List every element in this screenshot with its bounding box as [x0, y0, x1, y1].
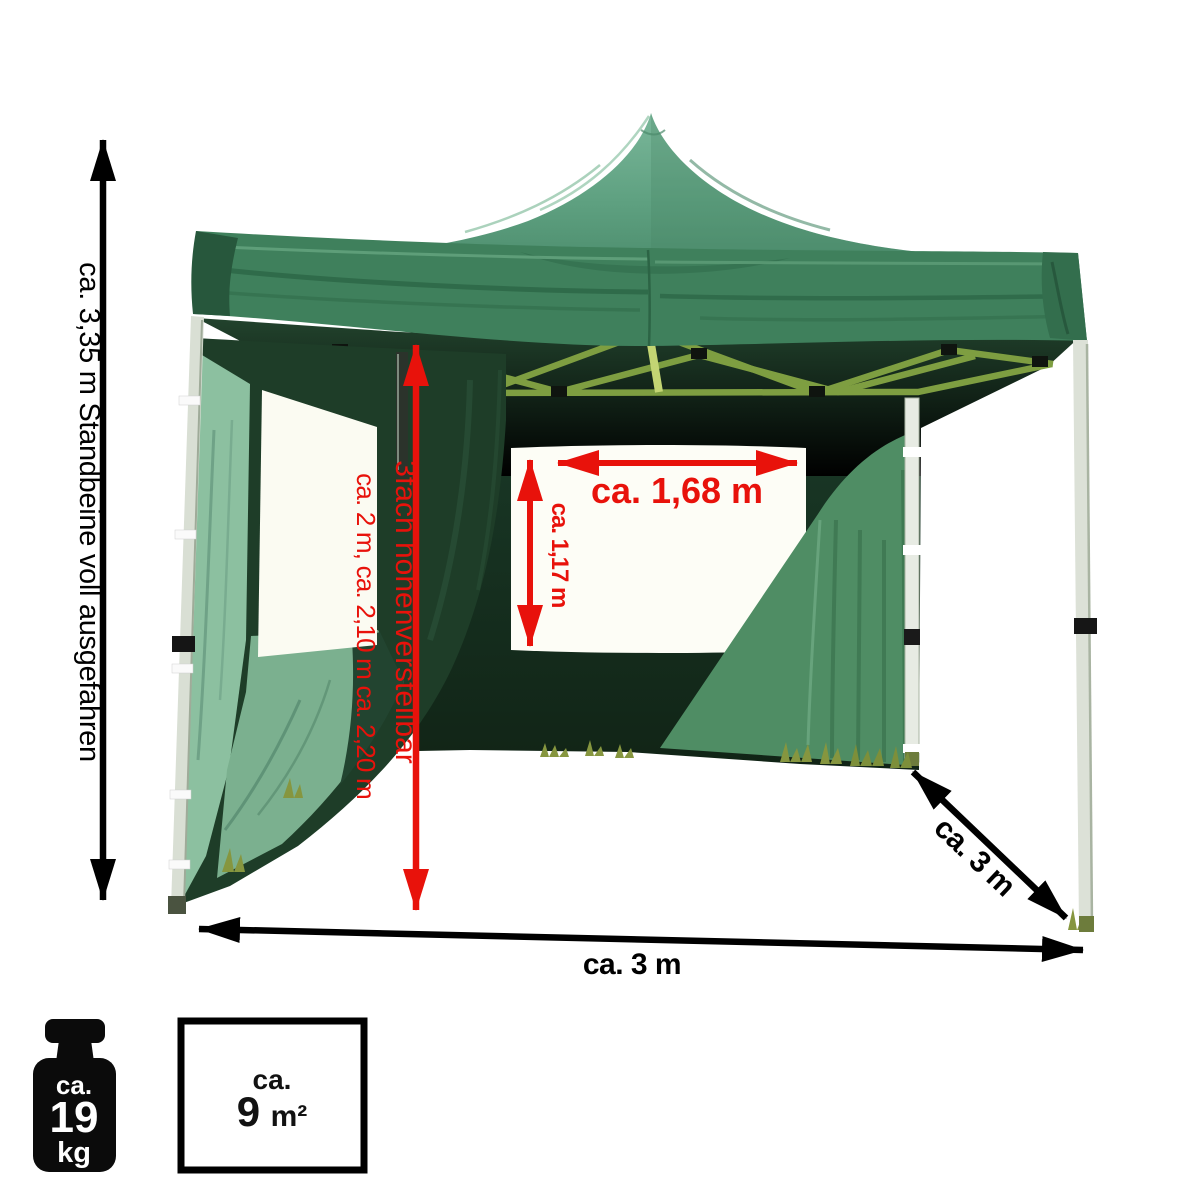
rear-left-pole	[396, 352, 408, 478]
product-figure: ca. 3,35 m Standbeine voll ausgefahren c…	[0, 0, 1200, 1200]
dimension-window-width: ca. 1,68 m	[558, 463, 797, 511]
tent-diagram: ca. 3,35 m Standbeine voll ausgefahren c…	[0, 0, 1200, 1200]
area-unit: m²	[271, 1100, 308, 1133]
dimension-front-width: ca. 3 m	[199, 929, 1083, 981]
window-height-label: ca. 1,17 m	[546, 503, 573, 608]
window-width-label: ca. 1,68 m	[591, 470, 763, 511]
dimension-total-height: ca. 3,35 m Standbeine voll ausgefahren	[73, 140, 105, 900]
tent-photo	[168, 113, 1097, 932]
area-value: 9	[237, 1088, 260, 1135]
side-panel	[181, 338, 506, 904]
spec-badges: ca. 19 kg ca. 9 m²	[33, 1019, 364, 1172]
side-depth-arrow	[913, 772, 1066, 918]
dimension-side-depth: ca. 3 m	[913, 772, 1066, 918]
adjustable-height-values: ca. 2 m, ca. 2,10 m ca. 2,20 m	[351, 473, 381, 799]
weight-badge: ca. 19 kg	[33, 1019, 116, 1172]
area-badge: ca. 9 m²	[181, 1021, 364, 1170]
front-width-label: ca. 3 m	[583, 948, 681, 981]
rear-right-leg	[903, 398, 921, 766]
front-width-arrow	[199, 929, 1083, 950]
right-front-leg	[1073, 340, 1097, 932]
area-badge-box	[181, 1021, 364, 1170]
side-depth-label: ca. 3 m	[928, 811, 1022, 903]
total-height-label: ca. 3,35 m Standbeine voll ausgefahren	[73, 262, 105, 762]
valance-right-corner	[1042, 252, 1087, 341]
weight-unit: kg	[57, 1137, 91, 1169]
canopy-peak	[295, 113, 1005, 258]
adjustable-height-label: 3fach höhenverstellbar	[389, 460, 422, 764]
weight-value: 19	[50, 1093, 99, 1142]
